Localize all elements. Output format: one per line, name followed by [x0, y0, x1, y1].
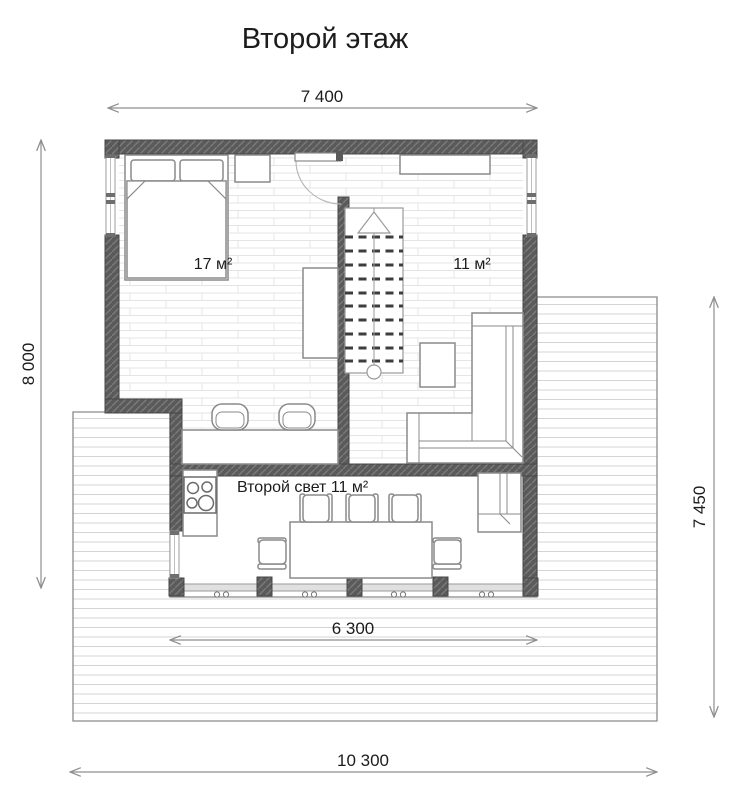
stairs-newel	[367, 365, 381, 379]
dimension-top-value: 7 400	[301, 87, 344, 106]
bar-stool-1	[212, 404, 248, 430]
door-hinge	[336, 151, 343, 161]
dimension-left: 8 000	[19, 140, 41, 588]
door-leaf	[295, 153, 341, 161]
post-bottom-1	[257, 577, 272, 596]
wardrobe	[400, 155, 490, 174]
dimension-outer-bottom-value: 10 300	[337, 751, 389, 770]
window-left-lower	[170, 531, 179, 578]
dimension-inner-bottom-value: 6 300	[332, 619, 375, 638]
post-bottom-right	[523, 578, 538, 596]
dining-chair-left	[258, 538, 286, 569]
dining-chair-right	[433, 538, 461, 569]
post-bottom-2	[347, 577, 362, 596]
coffee-table	[420, 343, 455, 387]
dining-table	[290, 522, 432, 578]
dimension-right: 7 450	[690, 297, 714, 717]
bed-pillow-right	[180, 160, 223, 181]
floor-plan-page: Второй этаж 17 м² 11 м² Второй свет 11 м…	[0, 0, 744, 801]
dining-chair-top-2	[346, 494, 378, 522]
wall-right	[523, 235, 537, 578]
window-left-upper	[106, 154, 115, 237]
dimension-outer-bottom: 10 300	[70, 751, 657, 772]
sofa-lower-right	[478, 473, 521, 532]
desk	[303, 268, 338, 358]
dining-chair-top-1	[300, 494, 332, 522]
dining-chair-top-3	[389, 494, 421, 522]
nightstand	[235, 155, 270, 182]
window-right-upper	[527, 154, 536, 237]
post-bottom-left	[169, 578, 184, 596]
dimension-left-value: 8 000	[19, 343, 38, 386]
dimension-top: 7 400	[108, 87, 537, 108]
kitchen-counter	[183, 470, 217, 536]
floor-plan-drawing: Второй этаж 17 м² 11 м² Второй свет 11 м…	[0, 0, 744, 801]
hall-area-label: 11 м²	[453, 256, 491, 273]
page-title: Второй этаж	[242, 23, 409, 55]
post-bottom-3	[433, 577, 448, 596]
bar-counter	[182, 430, 338, 464]
wall-step-left	[105, 399, 182, 413]
staircase	[345, 208, 403, 379]
wall-top	[105, 140, 537, 154]
second-light-label: Второй свет 11 м²	[237, 479, 369, 496]
bedroom-area-label: 17 м²	[194, 256, 233, 273]
wall-left	[105, 235, 119, 413]
bed-pillow-left	[131, 160, 175, 181]
bar-stool-2	[279, 404, 315, 430]
dimension-right-value: 7 450	[690, 486, 709, 529]
